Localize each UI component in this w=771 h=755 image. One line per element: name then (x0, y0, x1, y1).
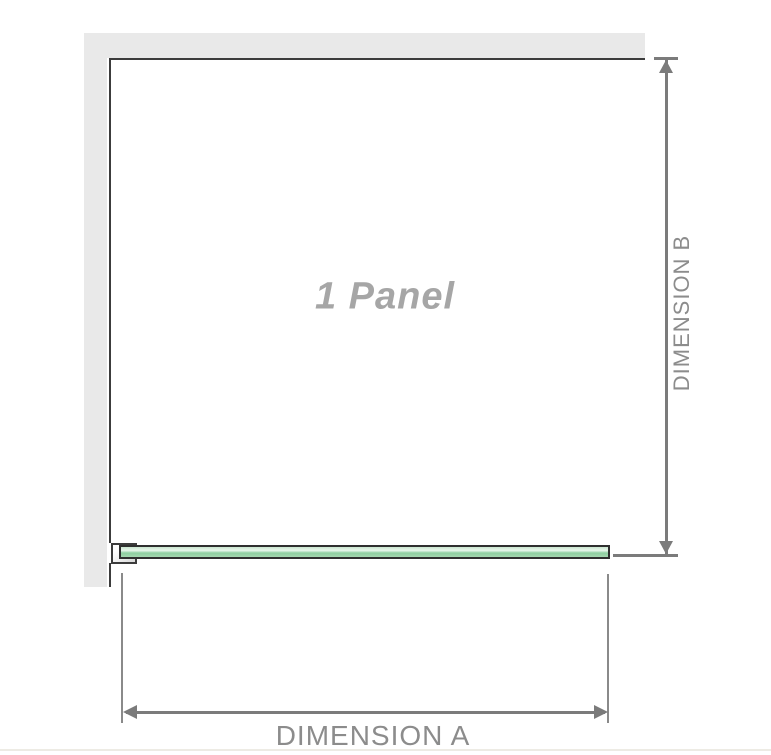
dimension-b-tick-bottom (613, 554, 678, 557)
opening-outline-top (109, 58, 645, 60)
dimension-b-label: DIMENSION B (669, 235, 695, 391)
arrow-left-icon (123, 705, 137, 719)
extension-line-right (607, 574, 609, 723)
dimension-a-line (126, 711, 605, 714)
panel-diagram: DIMENSION B DIMENSION A 1 Panel (0, 0, 771, 755)
arrow-up-icon (659, 60, 673, 73)
bottom-edge-strip (0, 749, 771, 751)
panel-count-label: 1 Panel (315, 276, 455, 319)
dimension-b-line (665, 60, 668, 555)
arrow-right-icon (594, 705, 608, 719)
glass-panel (119, 545, 610, 559)
extension-line-left (121, 573, 123, 723)
wall-left (84, 33, 107, 587)
dimension-a-label: DIMENSION A (276, 720, 471, 752)
opening-outline-left-upper (109, 58, 111, 543)
opening-outline-left-lower (109, 563, 111, 587)
wall-top (84, 33, 645, 58)
arrow-down-icon (659, 541, 673, 554)
